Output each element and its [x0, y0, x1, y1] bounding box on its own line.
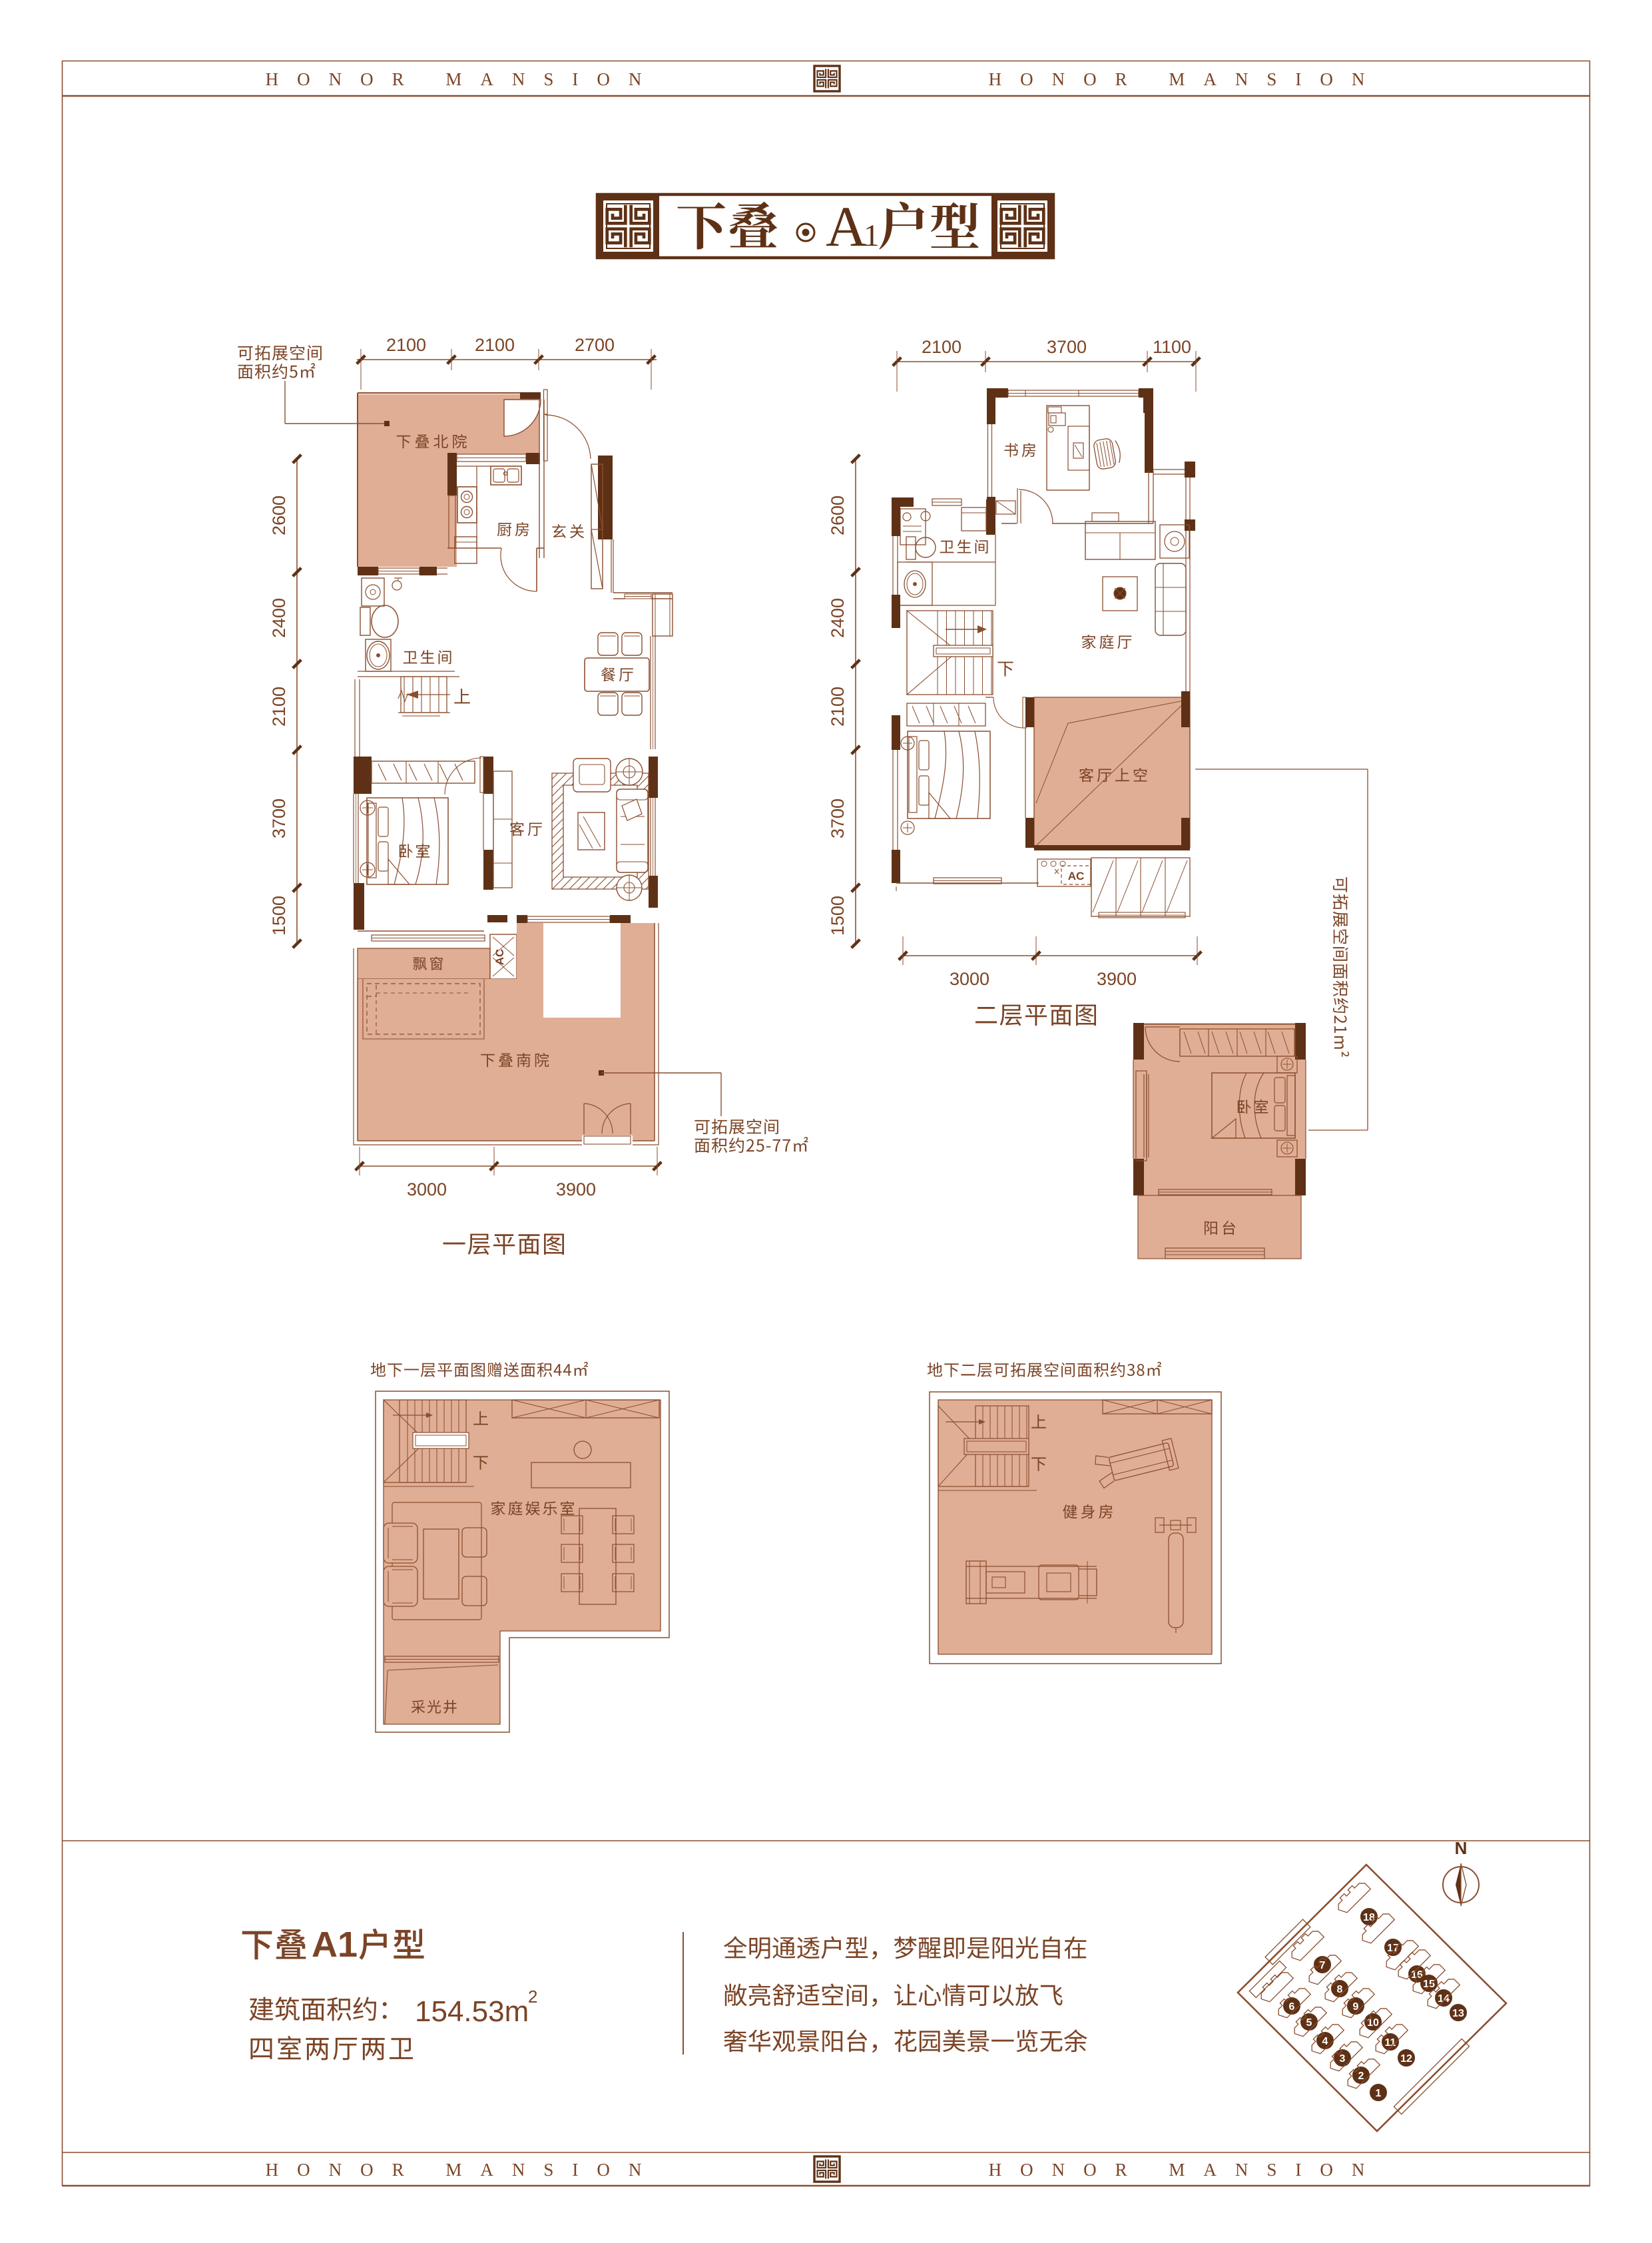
svg-text:5: 5 — [1306, 2017, 1312, 2029]
svg-text:A1: A1 — [312, 1925, 358, 1965]
svg-text:15: 15 — [1423, 1979, 1435, 1990]
svg-text:3700: 3700 — [828, 799, 848, 838]
svg-text:1: 1 — [864, 218, 880, 253]
svg-text:154.53m: 154.53m — [415, 1995, 529, 2028]
svg-text:2400: 2400 — [828, 598, 848, 638]
svg-text:3700: 3700 — [269, 799, 289, 838]
svg-text:4: 4 — [1322, 2036, 1328, 2047]
svg-text:AC: AC — [493, 949, 506, 966]
svg-text:3700: 3700 — [1047, 337, 1087, 357]
svg-text:HONOR MANSION: HONOR MANSION — [266, 2160, 661, 2180]
svg-text:2700: 2700 — [575, 335, 615, 355]
svg-text:2100: 2100 — [828, 687, 848, 727]
svg-text:AC: AC — [1068, 870, 1085, 882]
svg-text:2600: 2600 — [269, 495, 289, 535]
svg-text:2600: 2600 — [828, 495, 848, 535]
svg-text:3: 3 — [1340, 2053, 1346, 2065]
svg-text:2: 2 — [1358, 2071, 1364, 2082]
svg-text:2400: 2400 — [269, 598, 289, 638]
svg-text:16: 16 — [1411, 1969, 1423, 1981]
svg-text:2100: 2100 — [269, 687, 289, 727]
svg-text:7: 7 — [1320, 1960, 1326, 1971]
svg-text:1500: 1500 — [828, 896, 848, 936]
svg-text:1: 1 — [1376, 2088, 1382, 2099]
svg-text:2: 2 — [528, 1987, 537, 2007]
svg-text:10: 10 — [1367, 2017, 1379, 2029]
svg-text:14: 14 — [1438, 1993, 1450, 2005]
svg-text:3900: 3900 — [556, 1179, 596, 1199]
svg-text:HONOR MANSION: HONOR MANSION — [989, 2160, 1384, 2180]
svg-text:2100: 2100 — [922, 337, 962, 357]
svg-text:1500: 1500 — [269, 896, 289, 936]
svg-text:HONOR MANSION: HONOR MANSION — [266, 69, 661, 89]
svg-text:12: 12 — [1400, 2053, 1412, 2065]
svg-text:1100: 1100 — [1153, 337, 1191, 357]
svg-text:3000: 3000 — [950, 969, 989, 989]
svg-text:3900: 3900 — [1097, 969, 1137, 989]
svg-text:HONOR MANSION: HONOR MANSION — [989, 69, 1384, 89]
svg-text:2100: 2100 — [475, 335, 515, 355]
svg-text:2100: 2100 — [386, 335, 426, 355]
svg-text:3000: 3000 — [407, 1179, 447, 1199]
svg-text:A: A — [826, 194, 867, 258]
svg-text:N: N — [1455, 1838, 1468, 1858]
svg-text:13: 13 — [1452, 2008, 1464, 2019]
svg-text:11: 11 — [1385, 2037, 1396, 2049]
